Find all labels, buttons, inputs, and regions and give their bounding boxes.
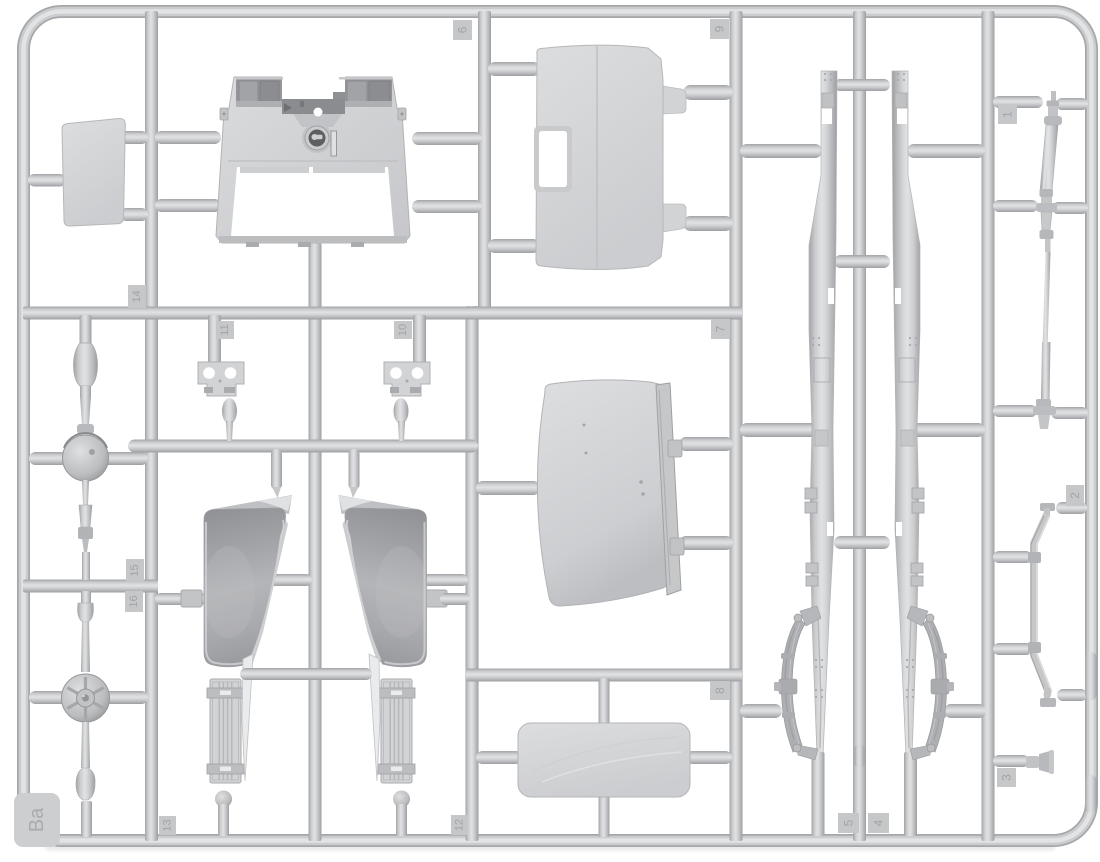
svg-text:Ba: Ba	[26, 807, 48, 832]
svg-text:1: 1	[1001, 111, 1015, 118]
svg-text:14: 14	[131, 290, 143, 302]
svg-text:10: 10	[397, 324, 409, 336]
svg-text:9: 9	[713, 25, 727, 32]
svg-text:11: 11	[219, 324, 231, 335]
svg-text:4: 4	[872, 819, 886, 826]
svg-text:15: 15	[129, 564, 141, 576]
svg-text:6: 6	[456, 26, 470, 33]
svg-text:13: 13	[162, 819, 174, 831]
svg-text:5: 5	[842, 819, 856, 826]
svg-text:7: 7	[714, 325, 728, 332]
svg-text:3: 3	[1000, 774, 1014, 781]
svg-text:2: 2	[1068, 492, 1082, 499]
svg-text:12: 12	[454, 819, 466, 831]
svg-text:16: 16	[128, 595, 140, 607]
svg-text:8: 8	[713, 687, 727, 694]
